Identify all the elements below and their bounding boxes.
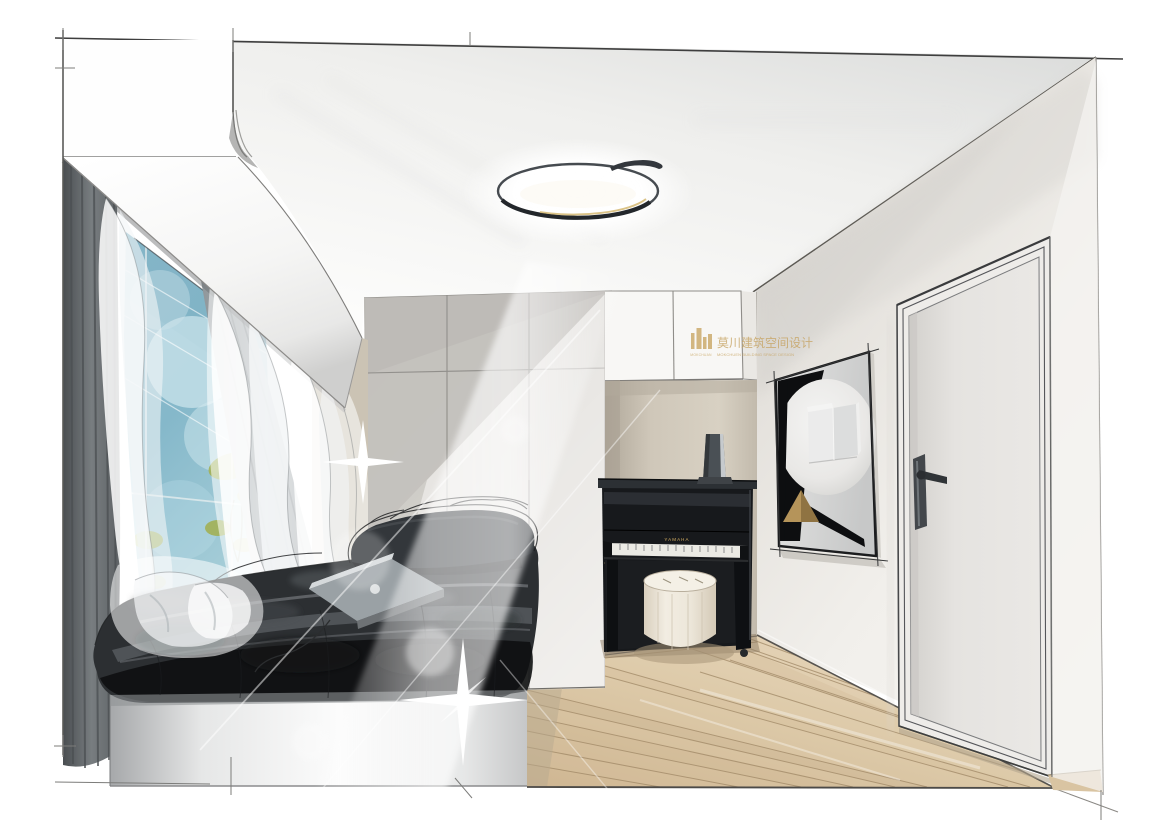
svg-text:MOKCHUAN: MOKCHUAN [690,353,712,357]
svg-text:莫川建筑空间设计: 莫川建筑空间设计 [717,335,813,350]
svg-text:YAMAHA: YAMAHA [664,537,689,542]
svg-text:MOKCHUEN BUILDING SPACE DESIGN: MOKCHUEN BUILDING SPACE DESIGN [717,352,794,357]
